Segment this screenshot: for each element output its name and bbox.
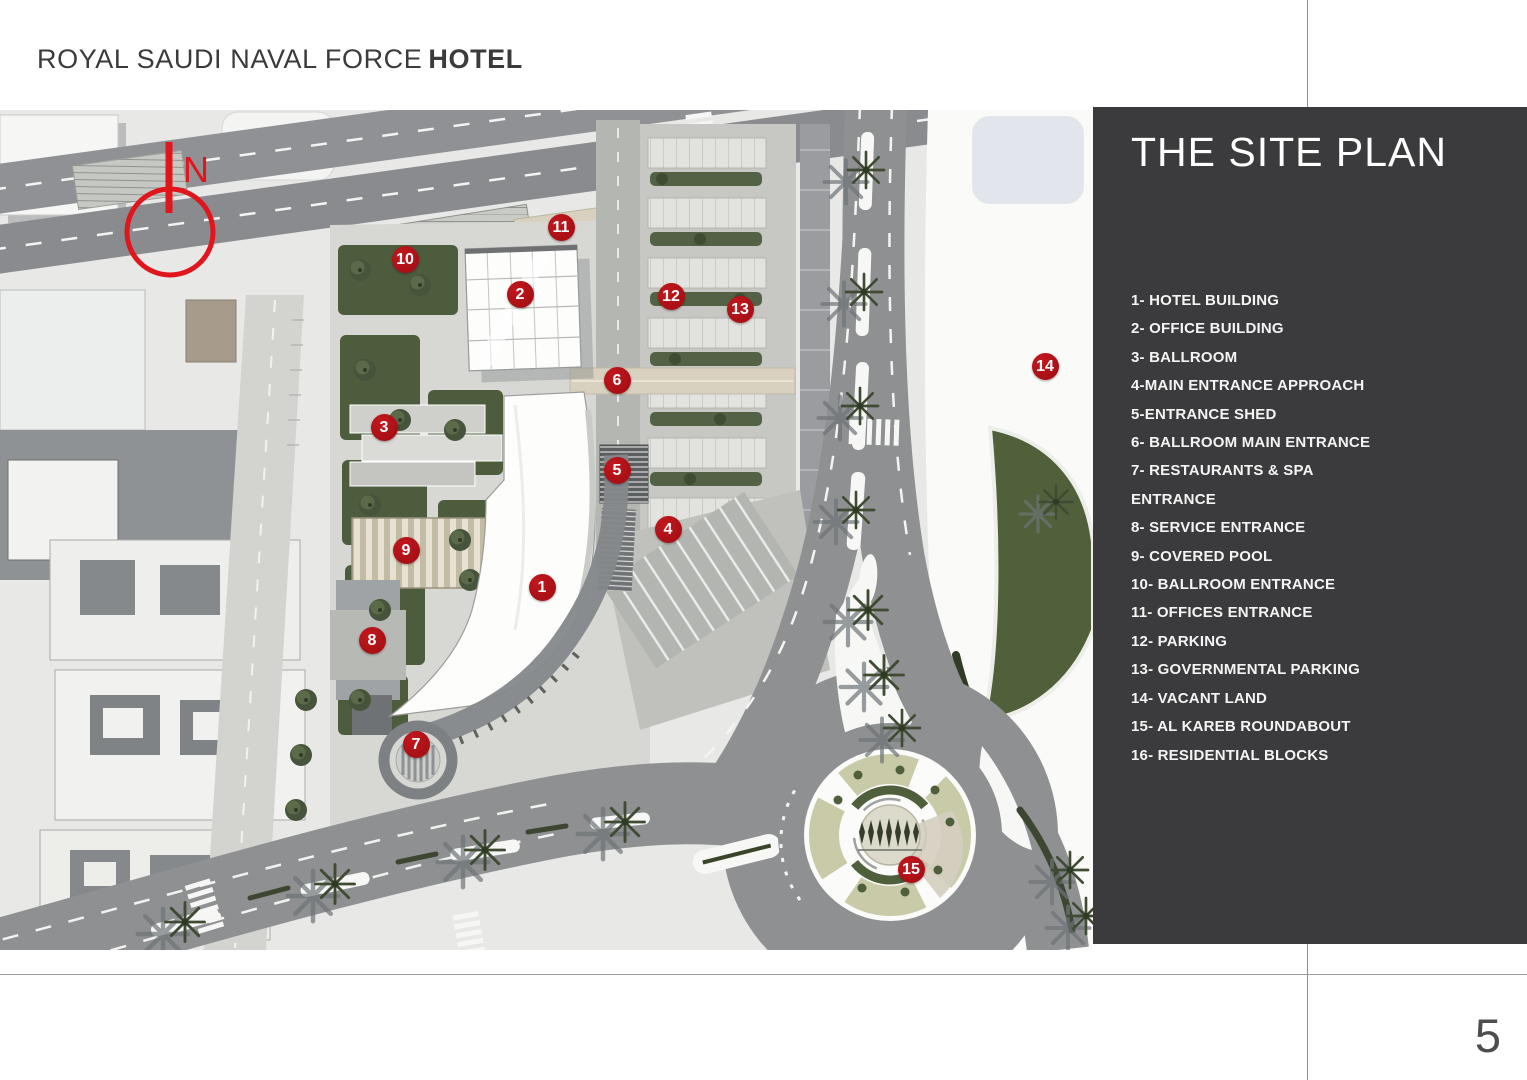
legend-item: 4-MAIN ENTRANCE APPROACH	[1131, 372, 1441, 400]
legend-item: 14- VACANT LAND	[1131, 685, 1441, 713]
page-number: 5	[1458, 1008, 1518, 1063]
legend-item: 1- HOTEL BUILDING	[1131, 287, 1441, 315]
legend-item: 8- SERVICE ENTRANCE	[1131, 514, 1441, 542]
divider-horizontal	[0, 974, 1527, 975]
legend-item: 11- OFFICES ENTRANCE	[1131, 599, 1441, 627]
legend-item: 13- GOVERNMENTAL PARKING	[1131, 656, 1441, 684]
legend-item: 7- RESTAURANTS & SPA ENTRANCE	[1131, 457, 1441, 514]
page-title-accent: HOTEL	[428, 44, 523, 74]
office-building	[465, 245, 594, 383]
legend-item: 2- OFFICE BUILDING	[1131, 315, 1441, 343]
legend-item: 3- BALLROOM	[1131, 344, 1441, 372]
legend-item: 12- PARKING	[1131, 628, 1441, 656]
sidebar-title: THE SITE PLAN	[1131, 129, 1447, 176]
spa-building	[384, 726, 452, 794]
legend-item: 9- COVERED POOL	[1131, 543, 1441, 571]
site-plan-svg: N	[0, 110, 1093, 950]
divider-vertical-top	[1307, 0, 1308, 107]
ballroom-main-entrance-walk	[570, 368, 795, 394]
legend-item: 5-ENTRANCE SHED	[1131, 401, 1441, 429]
legend-list: 1- HOTEL BUILDING2- OFFICE BUILDING3- BA…	[1131, 287, 1441, 770]
divider-vertical-bottom	[1307, 944, 1308, 1080]
north-label: N	[183, 149, 209, 190]
legend-item: 16- RESIDENTIAL BLOCKS	[1131, 742, 1441, 770]
site-plan-map: N	[0, 110, 1093, 950]
page-title: ROYAL SAUDI NAVAL FORCEHOTEL	[37, 44, 523, 75]
roundabout	[778, 723, 1002, 947]
legend-item: 15- AL KAREB ROUNDABOUT	[1131, 713, 1441, 741]
page-title-main: ROYAL SAUDI NAVAL FORCE	[37, 44, 422, 74]
legend-item: 6- BALLROOM MAIN ENTRANCE	[1131, 429, 1441, 457]
legend-item: 10- BALLROOM ENTRANCE	[1131, 571, 1441, 599]
sidebar: THE SITE PLAN 1- HOTEL BUILDING2- OFFICE…	[1093, 107, 1527, 944]
